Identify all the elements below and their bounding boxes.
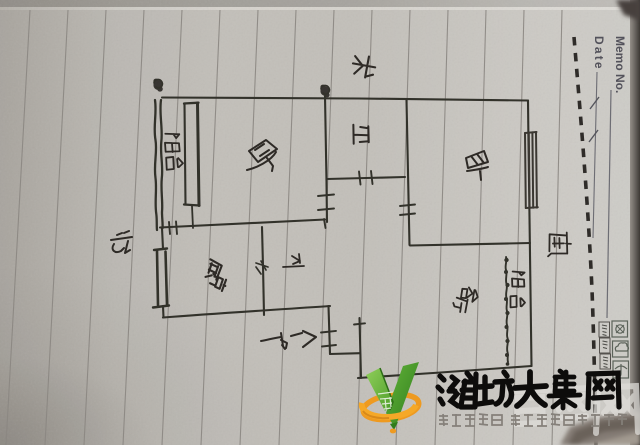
svg-text:Memo No.: Memo No. xyxy=(613,36,627,93)
svg-text:Date: Date xyxy=(592,36,606,71)
